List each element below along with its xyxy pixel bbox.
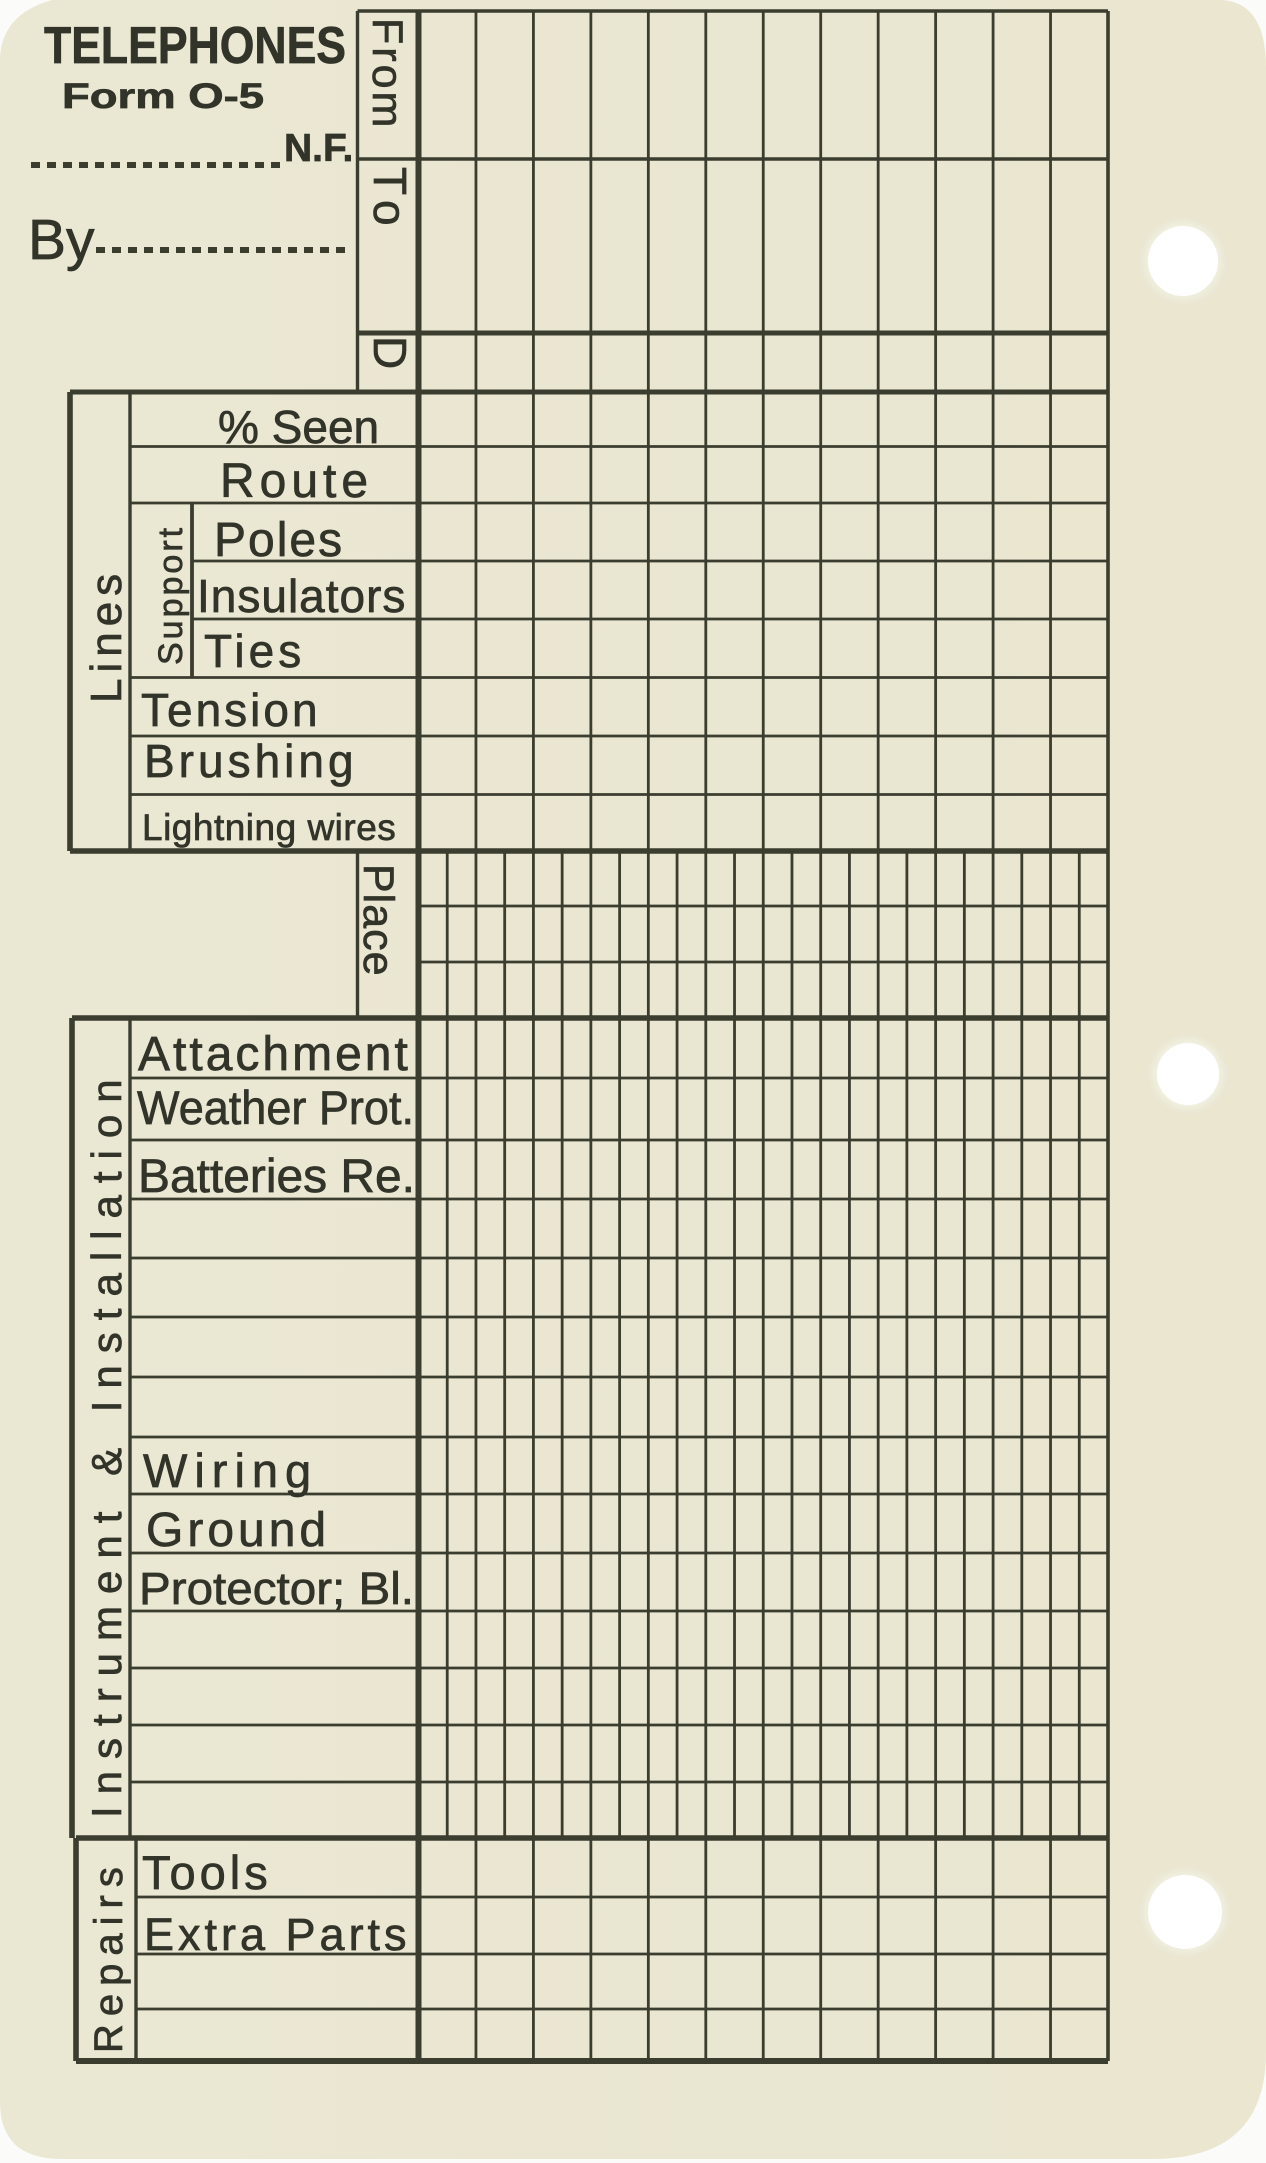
svg-text:Ties: Ties	[204, 625, 305, 677]
svg-text:Tools: Tools	[142, 1846, 272, 1899]
svg-text:N.F.: N.F.	[284, 127, 353, 170]
svg-text:Ground: Ground	[146, 1504, 330, 1557]
svg-text:Attachment: Attachment	[138, 1028, 411, 1081]
svg-text:% Seen: % Seen	[218, 401, 379, 453]
svg-text:Extra Parts: Extra Parts	[144, 1909, 411, 1960]
svg-text:Lines: Lines	[82, 568, 131, 703]
svg-text:Place: Place	[354, 864, 402, 977]
svg-text:Brushing: Brushing	[144, 735, 358, 787]
svg-text:Instrument & Installation: Instrument & Installation	[83, 1067, 130, 1818]
svg-text:Weather Prot.: Weather Prot.	[137, 1081, 414, 1134]
svg-text:Protector; Bl.: Protector; Bl.	[139, 1563, 414, 1614]
svg-text:Wiring: Wiring	[143, 1444, 318, 1497]
svg-text:Batteries Re.: Batteries Re.	[138, 1149, 415, 1202]
svg-text:From: From	[363, 18, 411, 130]
svg-text:Form O-5: Form O-5	[62, 77, 264, 116]
svg-text:TELEPHONES: TELEPHONES	[44, 17, 346, 75]
svg-text:Repairs: Repairs	[87, 1859, 131, 2053]
svg-text:Tension: Tension	[141, 684, 321, 736]
svg-text:To: To	[364, 167, 416, 236]
svg-text:Insulators: Insulators	[197, 570, 406, 622]
svg-text:Route: Route	[220, 455, 373, 508]
svg-text:By: By	[28, 208, 95, 272]
svg-text:D: D	[364, 336, 416, 369]
svg-text:Support: Support	[152, 525, 190, 665]
svg-text:Poles: Poles	[214, 514, 344, 567]
svg-text:Lightning wires: Lightning wires	[142, 807, 396, 848]
